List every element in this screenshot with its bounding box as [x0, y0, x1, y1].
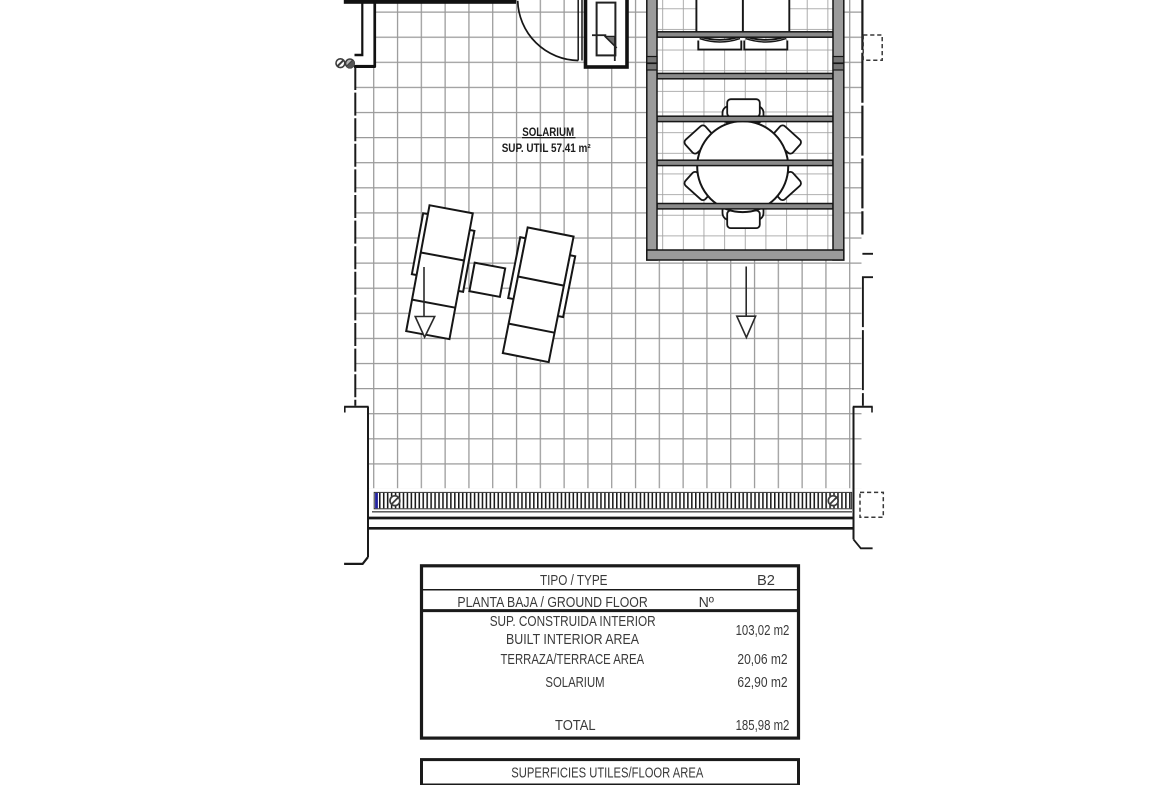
svg-text:103,02 m2: 103,02 m2 [736, 623, 790, 639]
svg-text:PLANTA BAJA / GROUND FLOOR: PLANTA BAJA / GROUND FLOOR [457, 595, 647, 611]
svg-text:SUP. UTIL 57.41 m²: SUP. UTIL 57.41 m² [502, 143, 591, 155]
svg-text:Nº: Nº [699, 595, 715, 611]
svg-text:TOTAL: TOTAL [555, 718, 596, 734]
svg-text:SOLARIUM: SOLARIUM [545, 675, 604, 691]
svg-text:BUILT INTERIOR AREA: BUILT INTERIOR AREA [506, 632, 639, 648]
svg-text:TERRAZA/TERRACE AREA: TERRAZA/TERRACE AREA [501, 652, 645, 668]
svg-text:20,06 m2: 20,06 m2 [737, 652, 787, 668]
svg-text:B2: B2 [757, 573, 775, 589]
svg-text:185,98 m2: 185,98 m2 [736, 718, 790, 734]
svg-text:SUP. CONSTRUIDA INTERIOR: SUP. CONSTRUIDA INTERIOR [490, 614, 656, 630]
svg-text:TIPO / TYPE: TIPO / TYPE [540, 573, 608, 589]
svg-text:SUPERFICIES UTILES/FLOOR AREA: SUPERFICIES UTILES/FLOOR AREA [511, 766, 703, 782]
svg-text:62,90 m2: 62,90 m2 [737, 675, 787, 691]
